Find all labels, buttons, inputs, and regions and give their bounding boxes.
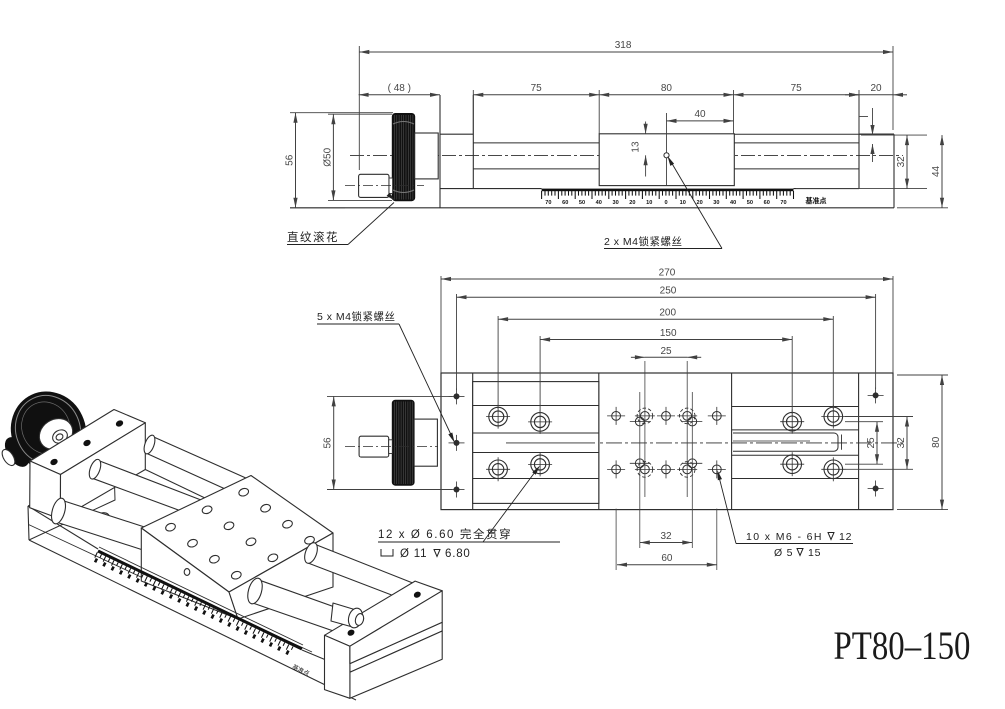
svg-text:75: 75 [791, 83, 803, 94]
svg-text:10 x M6 - 6H: 10 x M6 - 6H [746, 531, 823, 543]
svg-text:直纹滚花: 直纹滚花 [287, 230, 339, 244]
svg-text:6.80: 6.80 [445, 548, 471, 560]
svg-text:30: 30 [612, 200, 618, 206]
svg-text:基准点: 基准点 [805, 196, 827, 205]
svg-text:80: 80 [661, 83, 673, 94]
svg-text:60: 60 [562, 200, 568, 206]
svg-text:10: 10 [646, 200, 652, 206]
svg-text:Ø50: Ø50 [322, 147, 333, 166]
svg-text:40: 40 [694, 109, 706, 120]
svg-text:Ø 5: Ø 5 [774, 547, 793, 559]
svg-text:25: 25 [866, 437, 877, 449]
svg-text:32: 32 [896, 156, 907, 168]
svg-text:270: 270 [659, 268, 676, 279]
svg-text:32: 32 [896, 437, 907, 449]
svg-text:40: 40 [596, 200, 602, 206]
svg-text:15: 15 [808, 547, 821, 559]
svg-text:40: 40 [730, 200, 736, 206]
svg-text:75: 75 [531, 83, 543, 94]
svg-text:150: 150 [660, 328, 677, 339]
svg-text:Ø 11: Ø 11 [400, 548, 427, 560]
svg-text:25: 25 [660, 346, 672, 357]
svg-text:70: 70 [780, 200, 786, 206]
svg-text:20: 20 [696, 200, 702, 206]
svg-text:2 x M4锁紧螺丝: 2 x M4锁紧螺丝 [604, 235, 683, 248]
svg-text:10: 10 [680, 200, 686, 206]
svg-text:56: 56 [284, 154, 295, 166]
svg-text:80: 80 [931, 436, 942, 448]
svg-text:44: 44 [931, 165, 942, 177]
svg-text:30: 30 [713, 200, 719, 206]
svg-text:20: 20 [870, 83, 882, 94]
svg-text:56: 56 [323, 437, 334, 449]
svg-text:PT80–150: PT80–150 [834, 623, 971, 668]
svg-text:13: 13 [631, 141, 642, 153]
svg-text:0: 0 [664, 200, 667, 206]
svg-text:200: 200 [659, 308, 676, 319]
svg-text:250: 250 [660, 286, 677, 297]
svg-text:20: 20 [629, 200, 635, 206]
svg-text:70: 70 [545, 200, 551, 206]
svg-text:50: 50 [747, 200, 753, 206]
svg-text:60: 60 [661, 553, 673, 564]
svg-text:50: 50 [579, 200, 585, 206]
svg-text:60: 60 [764, 200, 770, 206]
svg-text:5 x M4锁紧螺丝: 5 x M4锁紧螺丝 [317, 310, 396, 323]
svg-text:( 48 ): ( 48 ) [388, 83, 411, 94]
svg-text:318: 318 [615, 40, 632, 51]
svg-text:12: 12 [839, 531, 852, 543]
svg-text:32: 32 [660, 531, 672, 542]
